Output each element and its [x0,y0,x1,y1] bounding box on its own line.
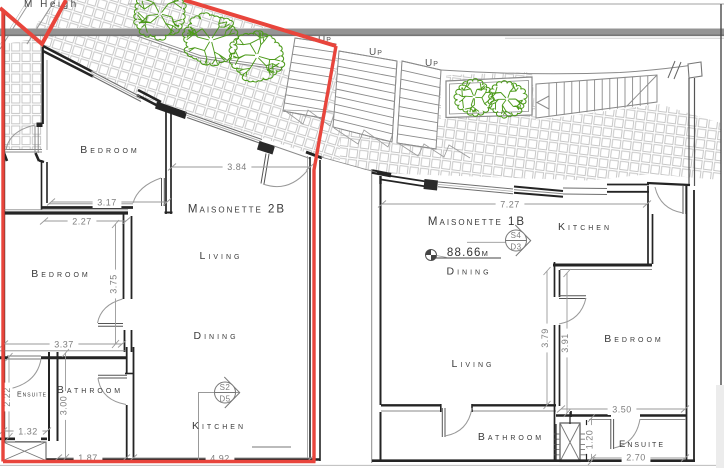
svg-text:S2: S2 [220,383,231,392]
svg-text:3.17: 3.17 [97,198,117,208]
svg-text:D5: D5 [219,395,230,404]
svg-text:Bathroom: Bathroom [478,431,544,443]
svg-text:7.27: 7.27 [500,200,520,210]
svg-text:D3: D3 [510,243,521,252]
svg-text:3.50: 3.50 [612,405,632,415]
svg-text:3.37: 3.37 [54,340,74,350]
svg-text:Bedroom: Bedroom [31,268,91,280]
svg-text:Dining: Dining [193,330,238,342]
svg-text:Ensuite: Ensuite [619,439,665,450]
svg-text:Maisonette 2B: Maisonette 2B [188,204,286,216]
svg-text:3.84: 3.84 [227,162,247,172]
svg-text:3.00: 3.00 [59,396,69,416]
svg-text:M Heigh: M Heigh [24,0,79,10]
svg-text:1.32: 1.32 [18,427,38,437]
svg-text:Living: Living [452,358,495,370]
svg-text:3.91: 3.91 [560,333,570,353]
svg-text:3.75: 3.75 [109,274,119,294]
svg-text:Up: Up [369,47,383,58]
svg-text:Living: Living [200,250,243,262]
svg-text:Bedroom: Bedroom [604,333,664,345]
svg-text:Kitchen: Kitchen [558,221,612,233]
svg-text:Maisonette 1B: Maisonette 1B [428,216,526,228]
svg-text:3.79: 3.79 [540,328,550,348]
svg-text:Up: Up [425,58,439,69]
svg-text:Kitchen: Kitchen [192,420,246,432]
svg-text:Dining: Dining [446,266,491,278]
svg-text:1.20: 1.20 [585,430,595,450]
svg-text:Bathroom: Bathroom [57,384,123,396]
svg-text:2.27: 2.27 [72,217,92,227]
svg-text:Ensuite: Ensuite [17,392,47,399]
svg-text:S4: S4 [511,231,522,240]
svg-text:Bedroom: Bedroom [80,144,140,156]
svg-text:88.66M: 88.66M [447,247,489,259]
svg-text:2.70: 2.70 [626,453,646,463]
